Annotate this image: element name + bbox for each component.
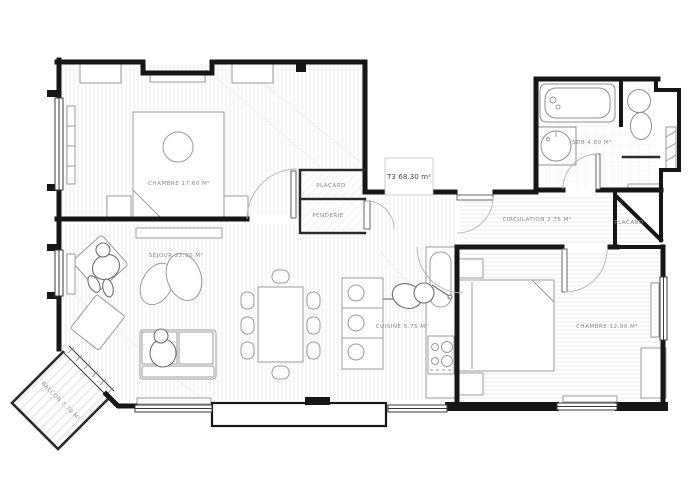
window <box>557 403 617 410</box>
room-label-circulation: CIRCULATION 2.75 M² <box>502 216 571 223</box>
radiator <box>563 396 617 402</box>
nightstand <box>107 196 131 217</box>
floor-plan: CHAMBRE 17.60 M² SÉJOUR 22.30 M² PLACARD… <box>0 0 700 500</box>
dining-chair <box>241 342 254 359</box>
wall-pier <box>296 64 306 72</box>
title-box: T3 68.30 m² <box>385 158 433 195</box>
radiator <box>137 398 211 404</box>
window <box>55 98 63 190</box>
window <box>135 405 212 412</box>
dining-chair <box>307 292 320 309</box>
dining-table <box>258 287 303 362</box>
room-label-placard-2: PLACARD <box>614 220 643 226</box>
wall <box>615 402 668 411</box>
wall-pier <box>47 90 59 97</box>
room-label-sdb: SDB 4.80 M² <box>572 139 612 146</box>
room-label-chambre-1: CHAMBRE 17.60 M² <box>148 180 210 187</box>
dresser <box>232 64 273 83</box>
window <box>388 405 447 412</box>
room-label-penderie: PENDERIE <box>312 213 344 219</box>
window <box>660 277 667 340</box>
room-label-placard-1: PLACARD <box>316 183 345 189</box>
dining-chair <box>307 317 320 334</box>
dining-chair <box>241 317 254 334</box>
dining-chair <box>241 292 254 309</box>
nightstand <box>458 373 483 395</box>
cooktop <box>428 336 454 374</box>
room-label-sejour: SÉJOUR 22.30 M² <box>149 251 204 259</box>
nightstand <box>224 196 248 217</box>
room-label-chambre-2: CHAMBRE 12.90 M² <box>576 323 638 330</box>
plan-title: T3 68.30 m² <box>386 172 431 181</box>
radiator <box>67 106 75 184</box>
window <box>55 250 63 296</box>
kitchen-counter <box>426 247 456 398</box>
console-table <box>136 228 222 238</box>
wall <box>445 402 559 411</box>
washbasin <box>537 127 576 165</box>
room-label-cuisine: CUISINE 5.75 M² <box>376 323 428 330</box>
dining-chair <box>307 342 320 359</box>
exterior-wall-bottom-thick <box>212 403 386 426</box>
dining-chair <box>272 366 289 379</box>
dining-chair <box>272 270 289 283</box>
wall-pier <box>305 397 330 405</box>
nightstand <box>458 259 483 278</box>
radiator <box>651 283 659 337</box>
double-bed <box>133 112 224 218</box>
bathtub <box>540 84 615 122</box>
radiator <box>67 254 75 294</box>
dresser <box>80 64 121 83</box>
